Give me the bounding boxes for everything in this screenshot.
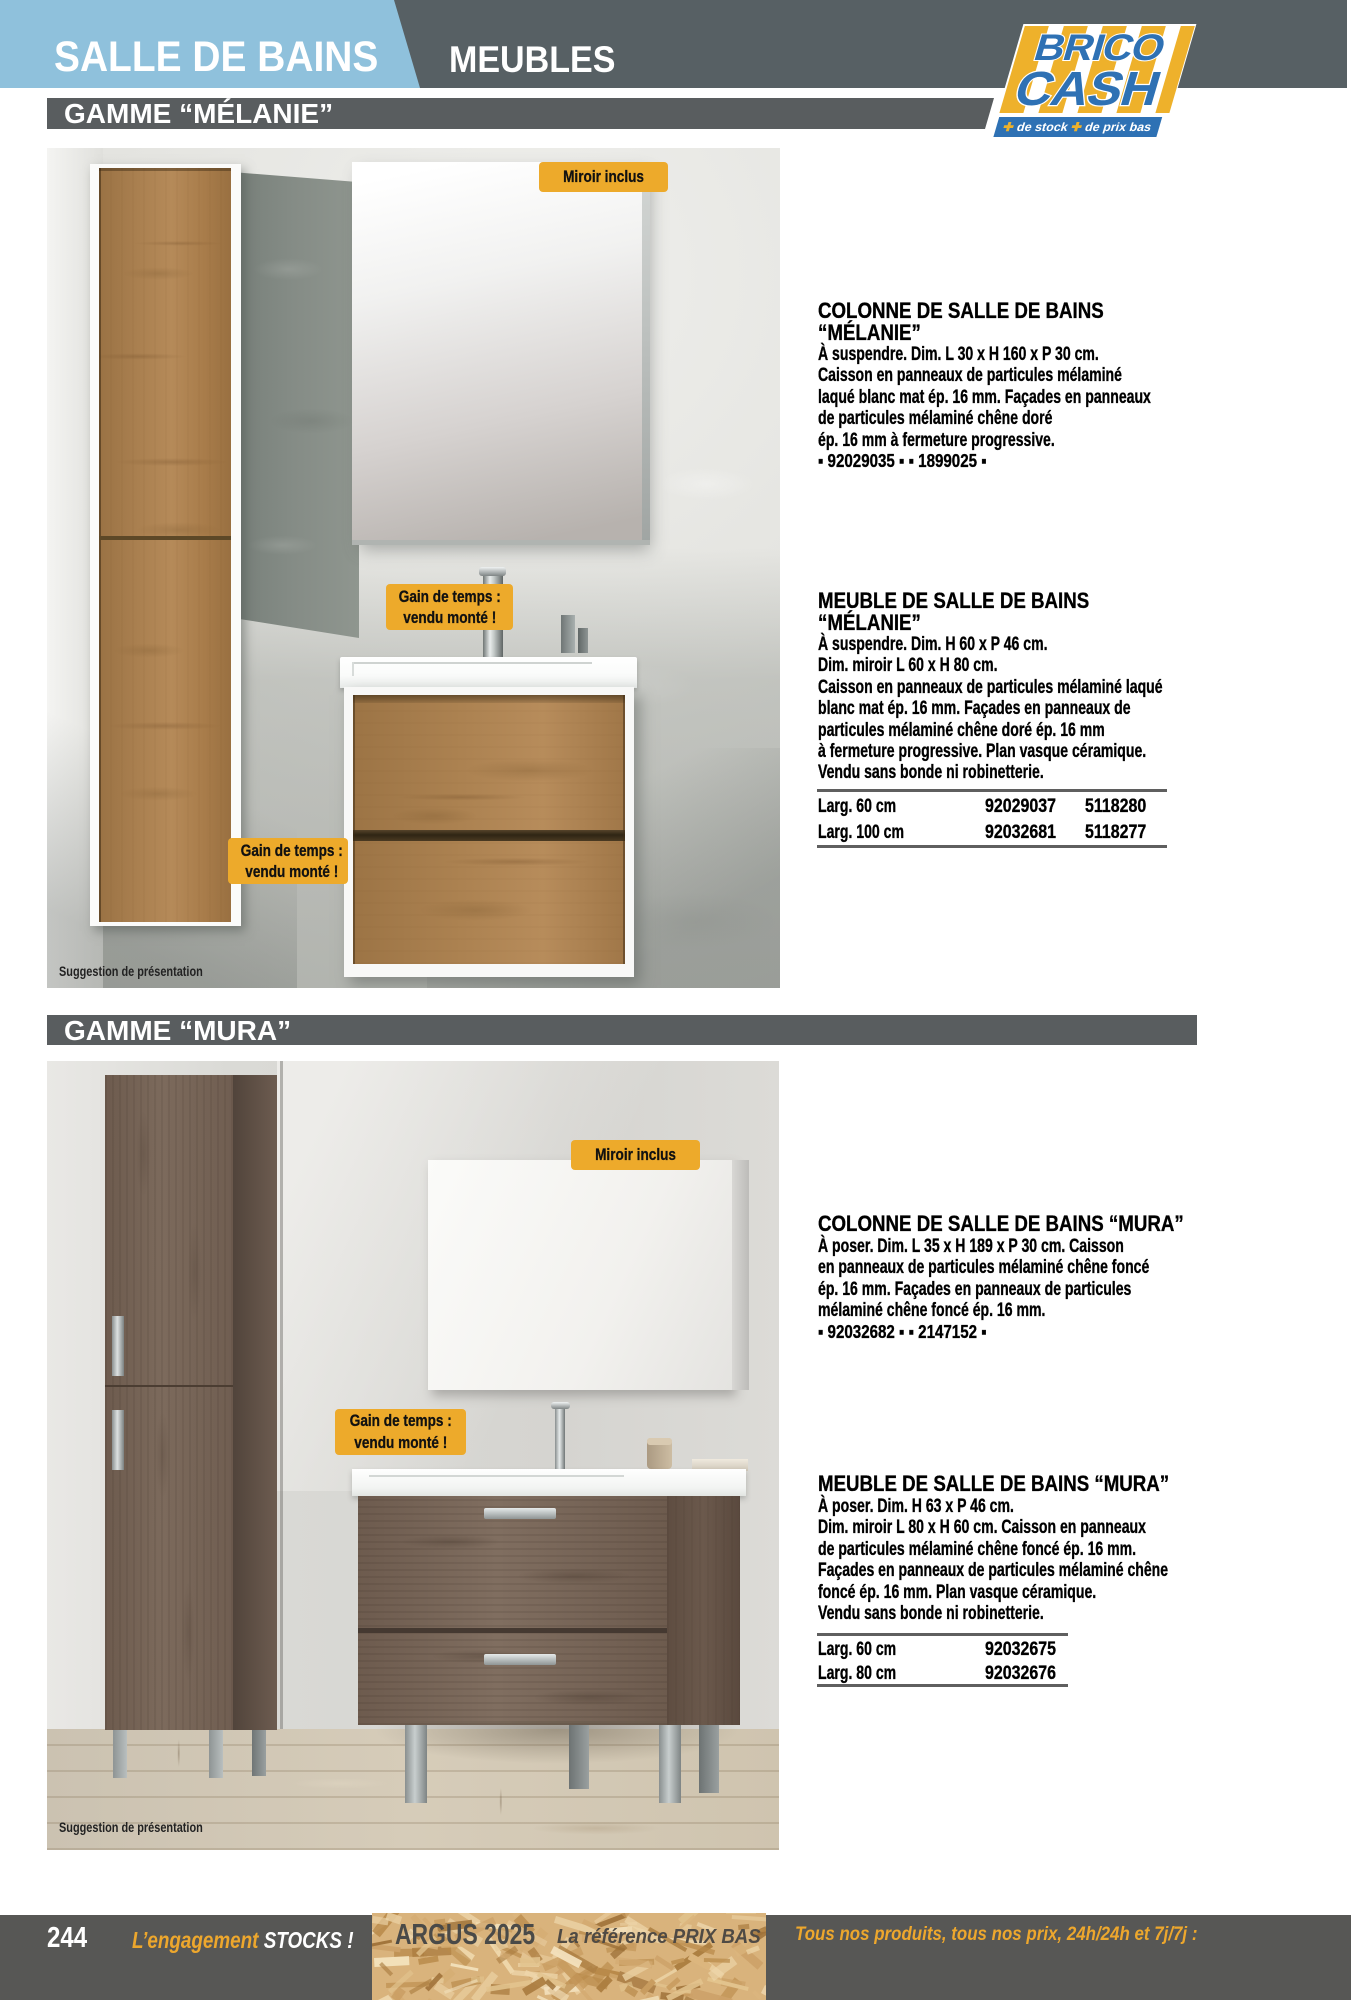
svg-text:CASH: CASH — [1009, 63, 1166, 116]
svg-text:✚ de stock ✚ de prix bas: ✚ de stock ✚ de prix bas — [1001, 120, 1153, 134]
